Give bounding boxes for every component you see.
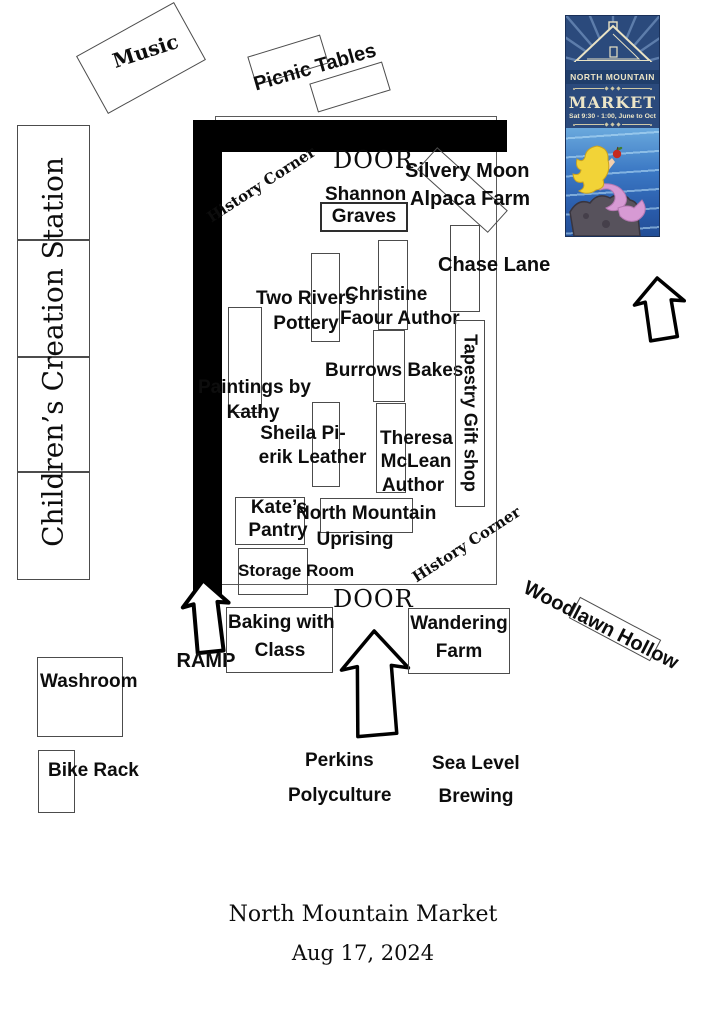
two-rivers-label: Two Rivers [256, 288, 356, 309]
washroom-label: Washroom [40, 671, 137, 692]
market-wall-left [193, 120, 222, 598]
perkins-label: Polyculture [288, 785, 388, 806]
christine-faour-label: Christine [345, 284, 423, 305]
theresa-mclean-label: Theresa [380, 428, 452, 449]
paintings-kathy-label: Kathy [198, 402, 308, 423]
silvery-moon-label: Alpaca Farm [410, 188, 522, 210]
mermaid-illustration [566, 128, 660, 236]
door-top-label: DOOR [333, 147, 409, 174]
poster-divider [573, 121, 652, 128]
market-poster: NORTH MOUNTAIN MARKET Sat 9:30 - 1:00, J… [565, 15, 660, 237]
sheila-pierik-label: Sheila Pi- [258, 423, 348, 444]
entrance-up-arrow-icon [334, 627, 416, 742]
christine-faour-label: Faour Author [340, 308, 450, 329]
map-title: North Mountain Market [173, 903, 553, 928]
nm-uprising-label: North Mountain [296, 503, 436, 524]
woodlawn-hollow-label: Woodlawn Hollow [520, 577, 673, 670]
sea-level-label: Brewing [438, 786, 514, 807]
sheila-pierik-booth [312, 402, 340, 487]
theresa-mclean-label: Author [378, 475, 448, 496]
washroom-box [37, 657, 123, 737]
sea-level-label: Sea Level [432, 753, 514, 774]
chase-lane-label: Chase Lane [438, 254, 538, 276]
wandering-farm-label: Wandering [410, 613, 508, 634]
burrows-bakes-label: Burrows Bakes [325, 360, 455, 381]
theresa-mclean-label: McLean [380, 451, 452, 472]
sheila-pierik-label: erik Leather [255, 447, 370, 468]
bike-rack-label: Bike Rack [48, 760, 139, 781]
storage-room-label: Storage Room [238, 561, 348, 580]
silvery-moon-label: Silvery Moon [405, 160, 527, 182]
shannon-graves-label: Graves [320, 206, 408, 227]
perkins-label: Perkins [305, 750, 373, 771]
poster-up-arrow-icon [627, 274, 691, 347]
door-bottom-label: DOOR [333, 586, 409, 613]
baking-class-label: Class [228, 640, 332, 661]
children-station-label: Children’s Creation Station [19, 125, 89, 580]
poster-sun-art [566, 16, 659, 70]
market-map: Music Picnic Tables Children’s Creation … [0, 0, 726, 1024]
poster-schedule: Sat 9:30 - 1:00, June to Oct [566, 113, 659, 120]
nm-uprising-label: Uprising [316, 529, 394, 550]
paintings-kathy-label: Paintings by [198, 377, 308, 398]
map-date: Aug 17, 2024 [173, 942, 553, 966]
poster-org: NORTH MOUNTAIN [566, 70, 659, 84]
baking-class-label: Baking with [228, 612, 332, 633]
poster-divider [573, 85, 652, 92]
wandering-farm-label: Farm [410, 641, 508, 662]
poster-title: MARKET [566, 93, 659, 112]
tapestry-label: Tapestry Gift shop [456, 321, 486, 506]
